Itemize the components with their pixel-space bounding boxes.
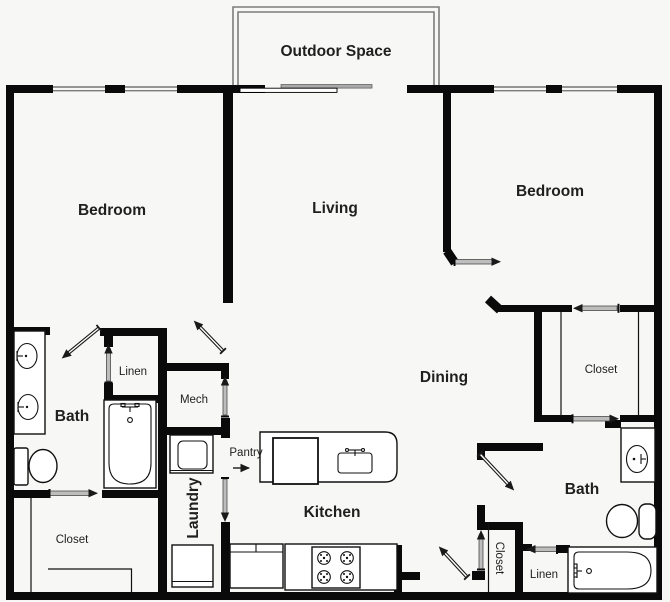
- kitchen-label: Kitchen: [304, 504, 361, 521]
- mech-label: Mech: [180, 394, 208, 406]
- linen-left-sliding-door: [105, 345, 113, 384]
- living-label: Living: [312, 200, 358, 217]
- bedroom-right-label: Bedroom: [516, 183, 584, 200]
- vanity-right: [621, 428, 655, 482]
- laundry-label: Laundry: [185, 477, 202, 539]
- mech-sliding-door: [221, 377, 229, 418]
- hall-door-swing: [195, 321, 226, 354]
- dishwasher: [230, 544, 283, 588]
- bath-left-door-swing: [63, 325, 102, 358]
- closet-bottom-label: Closet: [493, 542, 505, 575]
- bath-left-label: Bath: [55, 408, 89, 425]
- stove: [312, 547, 360, 588]
- window: [494, 87, 546, 91]
- outdoor-space-label: Outdoor Space: [280, 43, 391, 60]
- floor-plan-canvas: Outdoor Space Bedroom Living Bedroom Din…: [0, 0, 670, 602]
- bathtub-left: [104, 400, 156, 488]
- dining-label: Dining: [420, 369, 468, 386]
- bath-right-label: Bath: [565, 481, 599, 498]
- closet-right-top-sliding-door: [574, 304, 620, 313]
- double-vanity: [14, 331, 45, 434]
- closet-right-label: Closet: [585, 364, 618, 376]
- closet-left-label: Closet: [56, 534, 89, 546]
- linen-left-label: Linen: [119, 366, 147, 378]
- window: [53, 87, 105, 91]
- toilet-right: [607, 504, 657, 539]
- floor-plan: Outdoor Space Bedroom Living Bedroom Din…: [0, 0, 670, 602]
- closet-left-sliding-door: [49, 489, 98, 498]
- window: [125, 87, 177, 91]
- bedroom-left-label: Bedroom: [78, 202, 146, 219]
- laundry-pocket-door: [221, 477, 229, 521]
- refrigerator: [273, 438, 318, 484]
- entry-door-swing: [440, 547, 470, 580]
- bathtub-right: [568, 547, 657, 593]
- bath-right-door-swing: [477, 451, 513, 490]
- linen-bottom-label: Linen: [530, 569, 558, 581]
- bedroom-right-sliding-door: [454, 257, 501, 266]
- dryer: [172, 545, 213, 587]
- toilet-left: [14, 448, 57, 485]
- closet-bottom-pocket-door: [477, 531, 485, 571]
- washer: [170, 435, 213, 473]
- window: [562, 87, 617, 91]
- pantry-label: Pantry: [229, 447, 262, 459]
